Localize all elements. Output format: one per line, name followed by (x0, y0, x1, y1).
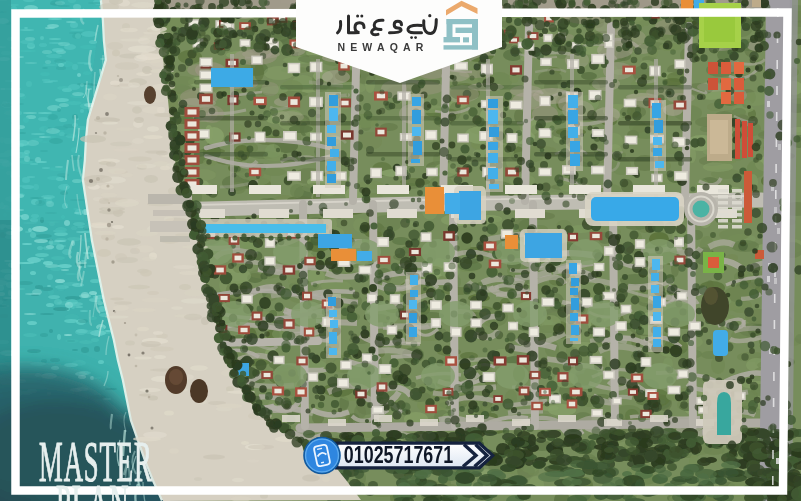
svg-text:NEWAQAR: NEWAQAR (337, 41, 428, 53)
svg-text:PLAN: PLAN (56, 473, 129, 501)
svg-text:01025717671: 01025717671 (344, 441, 453, 468)
